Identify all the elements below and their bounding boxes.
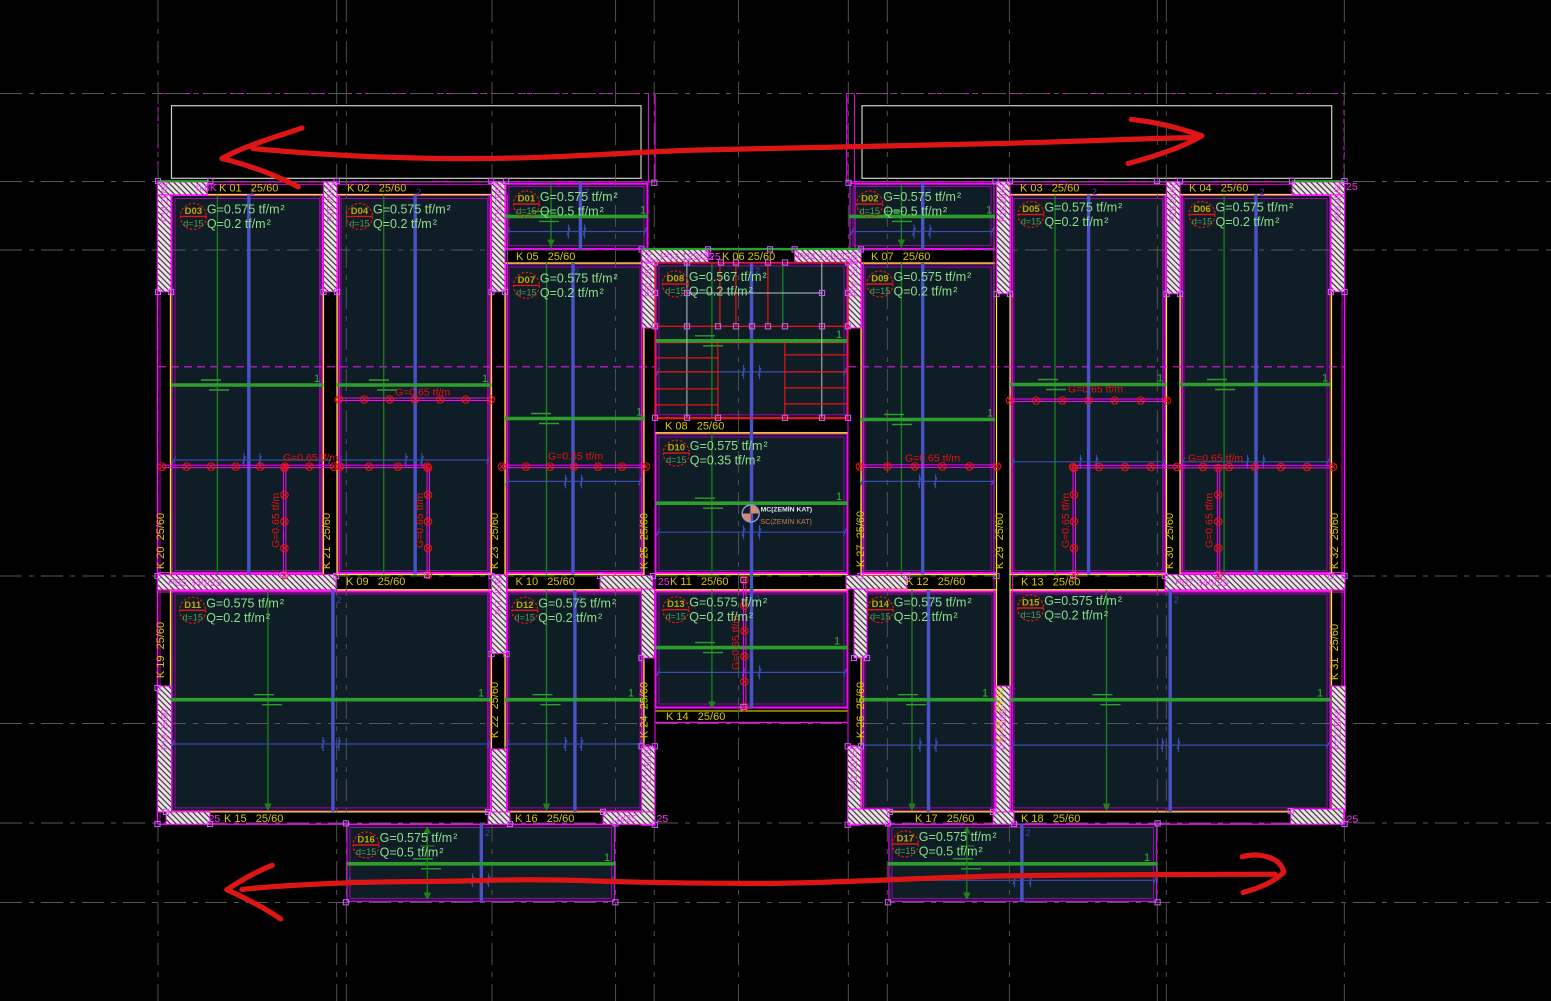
svg-text:1: 1 bbox=[604, 852, 610, 864]
svg-text:G=0.65 tf/m: G=0.65 tf/m bbox=[1188, 453, 1243, 465]
svg-text:d=15: d=15 bbox=[516, 287, 536, 297]
svg-text:K 18 25/60: K 18 25/60 bbox=[1021, 813, 1080, 825]
svg-text:Q=0.2 tf/m ²: Q=0.2 tf/m ² bbox=[207, 217, 271, 231]
svg-text:K 26 25/60: K 26 25/60 bbox=[855, 682, 867, 738]
svg-text:Q=0.2 tf/m ²: Q=0.2 tf/m ² bbox=[540, 286, 604, 300]
svg-text:K 03 25/60: K 03 25/60 bbox=[1020, 182, 1079, 194]
svg-text:1: 1 bbox=[836, 491, 842, 503]
svg-text:d=15: d=15 bbox=[516, 206, 536, 216]
svg-text:Q=0.35 tf/m ²: Q=0.35 tf/m ² bbox=[690, 454, 761, 468]
svg-text:d=15: d=15 bbox=[870, 612, 890, 622]
svg-text:K 08 25/60: K 08 25/60 bbox=[665, 421, 724, 433]
svg-text:P11 25/150: P11 25/150 bbox=[849, 745, 859, 790]
svg-text:D17: D17 bbox=[897, 834, 914, 845]
svg-text:K 05 25/60: K 05 25/60 bbox=[516, 251, 575, 263]
svg-text:P07 340/25: P07 340/25 bbox=[1175, 577, 1229, 589]
svg-text:K 19 25/60: K 19 25/60 bbox=[155, 622, 167, 678]
svg-text:25: 25 bbox=[1346, 181, 1358, 193]
svg-text:G=0.575 tf/m ²: G=0.575 tf/m ² bbox=[1044, 594, 1122, 608]
svg-text:1: 1 bbox=[836, 329, 842, 341]
svg-text:K 15 25/60: K 15 25/60 bbox=[224, 813, 283, 825]
svg-text:Q=0.2 tf/m ²: Q=0.2 tf/m ² bbox=[689, 610, 753, 624]
svg-text:K 20 25/60: K 20 25/60 bbox=[155, 513, 167, 569]
svg-text:G=0.575 tf/m ²: G=0.575 tf/m ² bbox=[206, 596, 284, 610]
svg-text:2: 2 bbox=[1174, 595, 1179, 605]
svg-text:D07: D07 bbox=[518, 275, 535, 286]
svg-text:d=15: d=15 bbox=[1192, 217, 1212, 227]
svg-text:P04 125/25: P04 125/25 bbox=[797, 251, 851, 263]
svg-text:P12 25/150: P12 25/150 bbox=[643, 744, 653, 790]
svg-text:1: 1 bbox=[987, 408, 993, 420]
svg-text:D12: D12 bbox=[516, 600, 533, 611]
svg-text:G=0.575 tf/m ²: G=0.575 tf/m ² bbox=[1045, 201, 1123, 215]
svg-text:1: 1 bbox=[986, 204, 992, 216]
svg-text:K 23 25/60: K 23 25/60 bbox=[489, 513, 501, 569]
svg-text:P18 25/60: P18 25/60 bbox=[998, 181, 1008, 222]
svg-text:1: 1 bbox=[834, 636, 840, 648]
svg-text:K 02 25/60: K 02 25/60 bbox=[347, 182, 406, 194]
svg-text:Q=0.2 tf/m ²: Q=0.2 tf/m ² bbox=[1044, 609, 1108, 623]
svg-text:1: 1 bbox=[482, 373, 488, 385]
svg-text:G=0.575 tf/m ²: G=0.575 tf/m ² bbox=[894, 596, 972, 610]
svg-text:P14 25/60: P14 25/60 bbox=[160, 181, 170, 222]
svg-text:Q=0.2 tf/m ²: Q=0.2 tf/m ² bbox=[894, 610, 958, 624]
svg-text:1: 1 bbox=[628, 688, 634, 700]
svg-text:K 01 25/60: K 01 25/60 bbox=[219, 182, 278, 194]
svg-text:0/25: 0/25 bbox=[617, 814, 637, 825]
svg-text:G=0.575 tf/m ²: G=0.575 tf/m ² bbox=[373, 202, 451, 216]
svg-text:0.0K: 0.0K bbox=[196, 183, 217, 194]
svg-text:1: 1 bbox=[478, 688, 484, 700]
svg-text:D03: D03 bbox=[185, 206, 202, 217]
svg-text:Q=0.2 tf/m ²: Q=0.2 tf/m ² bbox=[538, 611, 602, 625]
svg-text:G=0.575 tf/m ²: G=0.575 tf/m ² bbox=[380, 831, 458, 845]
svg-text:25: 25 bbox=[657, 813, 669, 825]
svg-text:d=15: d=15 bbox=[183, 612, 203, 622]
svg-text:D14: D14 bbox=[872, 599, 890, 610]
svg-text:25: 25 bbox=[1347, 813, 1359, 825]
svg-text:D02: D02 bbox=[861, 194, 878, 205]
svg-text:G=0.575 tf/m ²: G=0.575 tf/m ² bbox=[883, 190, 961, 204]
svg-text:25: 25 bbox=[209, 813, 221, 825]
svg-text:Q=0.2 tf/m ²: Q=0.2 tf/m ² bbox=[206, 611, 270, 625]
svg-text:2: 2 bbox=[1260, 187, 1265, 197]
svg-text:1: 1 bbox=[1322, 373, 1328, 385]
svg-text:G=0.65 tf/m: G=0.65 tf/m bbox=[283, 452, 338, 464]
svg-text:P16 25/60: P16 25/60 bbox=[494, 181, 504, 222]
svg-text:2: 2 bbox=[1026, 828, 1031, 838]
svg-text:Q=0.5 tf/m ²: Q=0.5 tf/m ² bbox=[380, 846, 444, 860]
svg-text:K 25 25/60: K 25 25/60 bbox=[639, 513, 651, 569]
svg-text:2: 2 bbox=[1092, 187, 1097, 197]
svg-text:d=15: d=15 bbox=[895, 846, 915, 856]
svg-text:D05: D05 bbox=[1022, 204, 1040, 215]
svg-text:P22 25/60: P22 25/60 bbox=[998, 709, 1008, 750]
svg-text:Q=0.2 tf/m ²: Q=0.2 tf/m ² bbox=[1216, 215, 1280, 229]
svg-text:d=15: d=15 bbox=[183, 218, 203, 228]
svg-text:K 07 25/60: K 07 25/60 bbox=[871, 251, 930, 263]
svg-text:P15 25/60: P15 25/60 bbox=[326, 181, 336, 222]
svg-text:G=0.575 tf/m ²: G=0.575 tf/m ² bbox=[919, 830, 997, 844]
svg-text:P19 25/60: P19 25/60 bbox=[1168, 181, 1178, 222]
svg-text:Q=0.2 tf/m ²: Q=0.2 tf/m ² bbox=[894, 285, 958, 299]
svg-text:d=15: d=15 bbox=[356, 847, 376, 857]
svg-text:K 32 25/60: K 32 25/60 bbox=[1329, 513, 1341, 569]
svg-text:P20 25/60: P20 25/60 bbox=[1333, 181, 1343, 222]
svg-text:G=0.575 tf/m ²: G=0.575 tf/m ² bbox=[894, 270, 972, 284]
svg-text:K 22 25/60: K 22 25/60 bbox=[489, 682, 501, 738]
svg-text:G=0.65 tf/m: G=0.65 tf/m bbox=[1068, 384, 1123, 396]
svg-text:1: 1 bbox=[982, 688, 988, 700]
svg-text:D16: D16 bbox=[357, 835, 374, 846]
svg-text:1: 1 bbox=[1157, 373, 1163, 385]
svg-text:25: 25 bbox=[658, 576, 670, 588]
svg-text:G=0.575 tf/m ²: G=0.575 tf/m ² bbox=[689, 596, 767, 610]
svg-text:K 24 25/60: K 24 25/60 bbox=[639, 682, 651, 738]
svg-text:G=0.65 tf/m: G=0.65 tf/m bbox=[1060, 493, 1072, 548]
svg-text:G=0.575 tf/m ²: G=0.575 tf/m ² bbox=[540, 271, 618, 285]
svg-text:1: 1 bbox=[636, 407, 642, 419]
svg-text:K 10 25/60: K 10 25/60 bbox=[516, 576, 575, 588]
svg-text:K 04 25/60: K 04 25/60 bbox=[1189, 182, 1248, 194]
svg-text:D10: D10 bbox=[668, 443, 685, 454]
svg-text:D08: D08 bbox=[667, 274, 684, 285]
svg-text:G=0.567 tf/m ²: G=0.567 tf/m ² bbox=[689, 270, 767, 284]
svg-text:K 17 25/60: K 17 25/60 bbox=[915, 813, 974, 825]
svg-text:P17 25/60: P17 25/60 bbox=[494, 574, 504, 615]
svg-text:2: 2 bbox=[416, 187, 421, 197]
svg-text:d=15: d=15 bbox=[666, 612, 686, 622]
svg-text:K 30 25/60: K 30 25/60 bbox=[1164, 513, 1176, 569]
svg-text:D06: D06 bbox=[1193, 204, 1210, 215]
svg-text:D15: D15 bbox=[1022, 598, 1040, 609]
svg-text:d=15: d=15 bbox=[349, 218, 369, 228]
svg-text:G=0.575 tf/m ²: G=0.575 tf/m ² bbox=[207, 202, 285, 216]
svg-text:d=15: d=15 bbox=[860, 206, 880, 216]
svg-text:D04: D04 bbox=[351, 206, 369, 217]
svg-text:1: 1 bbox=[1317, 688, 1323, 700]
svg-text:G=0.575 tf/m ²: G=0.575 tf/m ² bbox=[540, 190, 618, 204]
svg-text:P05 340/25: P05 340/25 bbox=[168, 577, 222, 589]
svg-text:K 14 25/60: K 14 25/60 bbox=[666, 711, 725, 723]
svg-text:1: 1 bbox=[640, 204, 646, 216]
svg-text:Q=0.2 tf/m ²: Q=0.2 tf/m ² bbox=[1045, 215, 1109, 229]
svg-text:D01: D01 bbox=[518, 194, 536, 205]
svg-text:K 16 25/60: K 16 25/60 bbox=[515, 813, 574, 825]
svg-text:D11: D11 bbox=[184, 600, 202, 611]
svg-text:d=15: d=15 bbox=[870, 286, 890, 296]
svg-text:G=0.575 tf/m ²: G=0.575 tf/m ² bbox=[538, 596, 616, 610]
svg-text:D09: D09 bbox=[871, 274, 888, 285]
svg-text:K 09 25/60: K 09 25/60 bbox=[346, 576, 405, 588]
svg-text:Q=0.5 tf/m ²: Q=0.5 tf/m ² bbox=[919, 845, 983, 859]
svg-text:D13: D13 bbox=[667, 599, 684, 610]
svg-text:G=0.65 tf/m: G=0.65 tf/m bbox=[395, 386, 450, 398]
svg-text:K 12 25/60: K 12 25/60 bbox=[906, 576, 965, 588]
svg-text:G=0.65 tf/m: G=0.65 tf/m bbox=[270, 493, 282, 548]
svg-text:1: 1 bbox=[314, 373, 320, 385]
svg-text:Q=0.5 tf/m ²: Q=0.5 tf/m ² bbox=[540, 205, 604, 219]
svg-text:P03 125/25: P03 125/25 bbox=[660, 251, 714, 263]
svg-text:P13 25/60: P13 25/60 bbox=[160, 709, 170, 750]
svg-text:2: 2 bbox=[485, 828, 490, 838]
svg-text:K 29 25/60: K 29 25/60 bbox=[994, 513, 1006, 569]
svg-text:Q=0.5 tf/m ²: Q=0.5 tf/m ² bbox=[883, 205, 947, 219]
svg-text:G=0.65 tf/m: G=0.65 tf/m bbox=[1204, 493, 1216, 548]
svg-text:d=15: d=15 bbox=[1021, 610, 1041, 620]
svg-text:K 11 25/60: K 11 25/60 bbox=[670, 576, 729, 588]
svg-text:d=15: d=15 bbox=[1021, 217, 1041, 227]
svg-text:Q=0.2 tf/m ²: Q=0.2 tf/m ² bbox=[373, 217, 437, 231]
svg-text:K 06 25/60: K 06 25/60 bbox=[722, 251, 775, 263]
svg-text:MC(ZEMİN KAT): MC(ZEMİN KAT) bbox=[761, 506, 813, 514]
svg-text:G=0.65 tf/m: G=0.65 tf/m bbox=[905, 453, 960, 465]
svg-text:1: 1 bbox=[1144, 852, 1150, 864]
svg-text:2: 2 bbox=[337, 595, 342, 605]
svg-text:P23 25/60: P23 25/60 bbox=[1333, 709, 1343, 750]
svg-text:d=15: d=15 bbox=[665, 286, 685, 296]
svg-text:G=0.575 tf/m ²: G=0.575 tf/m ² bbox=[690, 439, 768, 453]
svg-text:d=15: d=15 bbox=[666, 455, 686, 465]
svg-text:d=15: d=15 bbox=[515, 612, 535, 622]
svg-text:G=0.65 tf/m: G=0.65 tf/m bbox=[414, 493, 426, 548]
svg-text:K 21 25/60: K 21 25/60 bbox=[321, 513, 333, 569]
svg-text:G=0.65 tf/m: G=0.65 tf/m bbox=[548, 451, 603, 463]
svg-text:SC(ZEMİN KAT): SC(ZEMİN KAT) bbox=[761, 517, 812, 526]
svg-text:Q=0.2 tf/m ²: Q=0.2 tf/m ² bbox=[689, 285, 753, 299]
svg-text:K 27 25/60: K 27 25/60 bbox=[855, 511, 867, 567]
svg-text:G=0.575 tf/m ²: G=0.575 tf/m ² bbox=[1216, 201, 1294, 215]
svg-text:K 31 25/60: K 31 25/60 bbox=[1329, 624, 1341, 680]
